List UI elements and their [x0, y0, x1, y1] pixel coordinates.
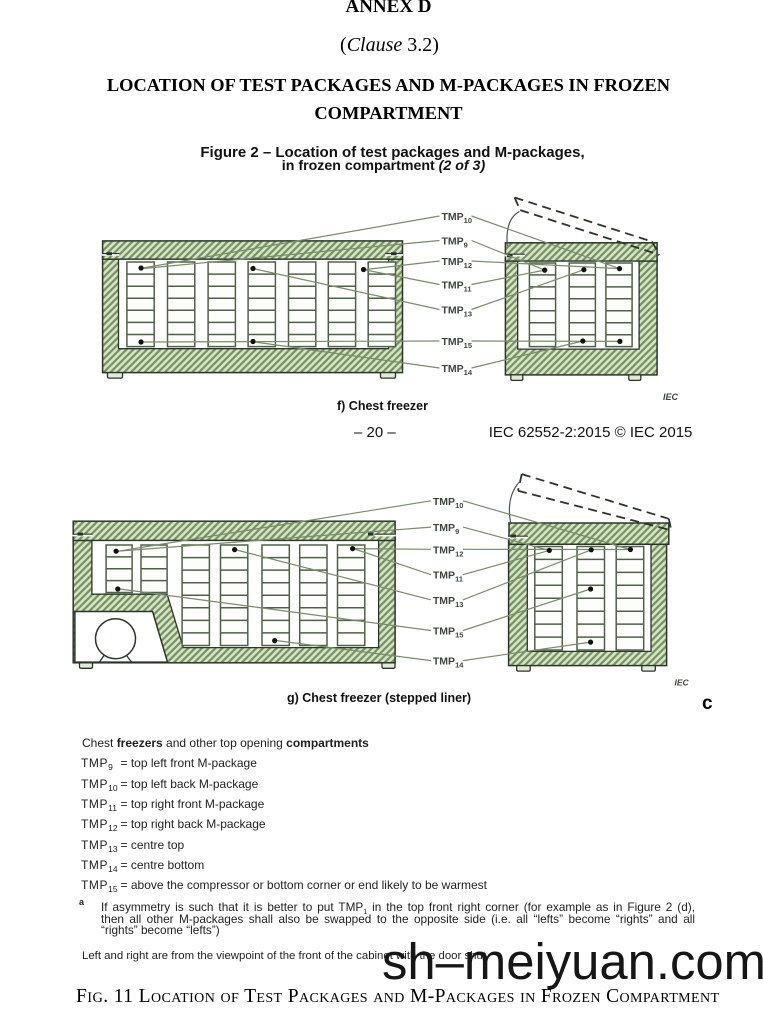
- svg-text:IEC: IEC: [663, 392, 679, 402]
- svg-text:TMP10: TMP10: [442, 211, 473, 225]
- svg-text:TMP15: TMP15: [442, 336, 473, 350]
- svg-text:TMP13: TMP13: [433, 595, 464, 609]
- svg-text:TMP15: TMP15: [433, 626, 464, 640]
- svg-text:TMP9: TMP9: [433, 522, 459, 536]
- svg-text:TMP14: TMP14: [433, 656, 464, 670]
- svg-text:TMP13: TMP13: [442, 305, 473, 319]
- svg-text:TMP9: TMP9: [442, 236, 468, 250]
- svg-text:TMP11: TMP11: [442, 280, 472, 294]
- svg-text:TMP10: TMP10: [433, 496, 464, 510]
- svg-text:TMP12: TMP12: [433, 544, 464, 558]
- svg-text:TMP11: TMP11: [433, 570, 463, 584]
- svg-text:TMP12: TMP12: [442, 256, 473, 270]
- svg-text:IEC: IEC: [675, 678, 690, 688]
- svg-text:TMP14: TMP14: [442, 363, 473, 377]
